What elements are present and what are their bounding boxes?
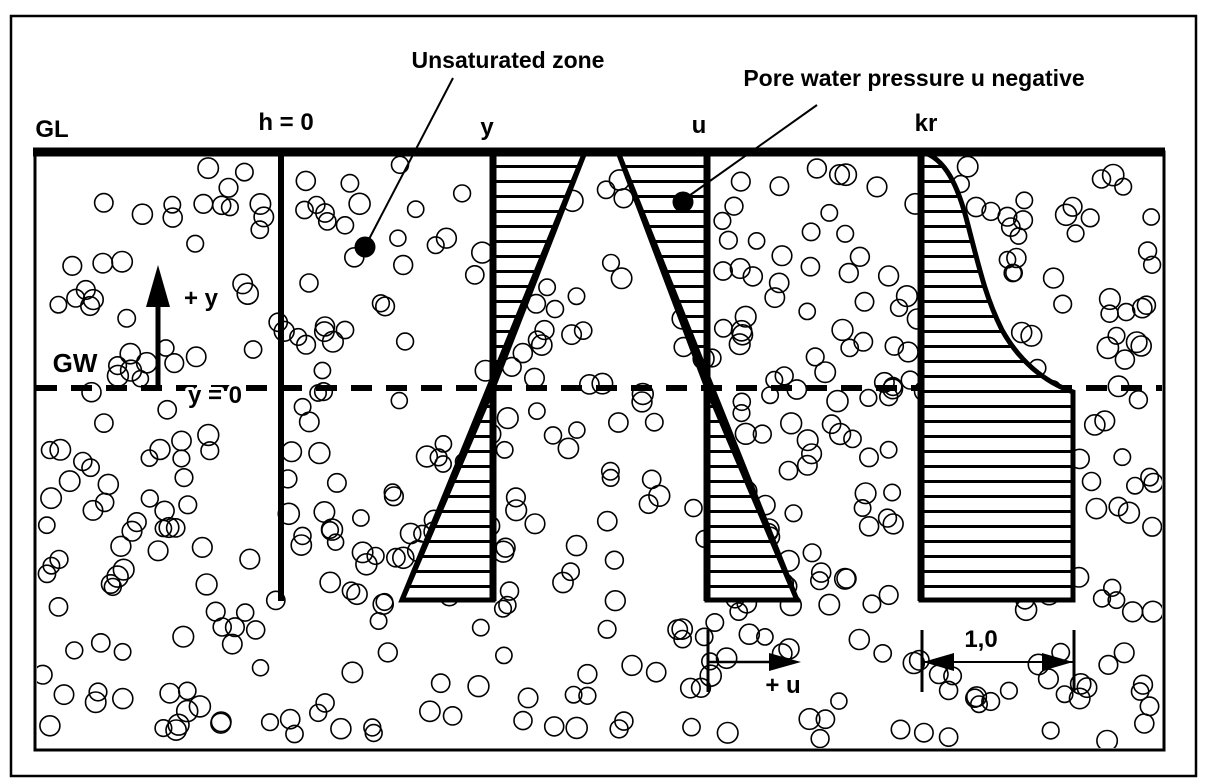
kr-axis-label: kr <box>915 110 938 137</box>
gl-label: GL <box>35 116 68 143</box>
y-axis-label: y <box>480 114 494 141</box>
plus-u-label: + u <box>765 672 800 699</box>
y-zero-label: y = 0 <box>188 382 242 409</box>
diagram-canvas: Unsaturated zone Pore water pressure u n… <box>0 0 1209 784</box>
gw-label: GW <box>53 348 98 378</box>
unsaturated-leader-dot <box>355 237 376 258</box>
figure: Unsaturated zone Pore water pressure u n… <box>0 0 1209 784</box>
h-zero-label: h = 0 <box>258 109 313 136</box>
plus-y-label: + y <box>184 285 219 312</box>
kr-dimension-label: 1,0 <box>964 626 997 653</box>
unsaturated-zone-label: Unsaturated zone <box>412 47 605 73</box>
u-axis-label: u <box>692 112 707 139</box>
pore-leader-dot <box>673 192 694 213</box>
pore-water-pressure-label: Pore water pressure u negative <box>743 65 1084 91</box>
